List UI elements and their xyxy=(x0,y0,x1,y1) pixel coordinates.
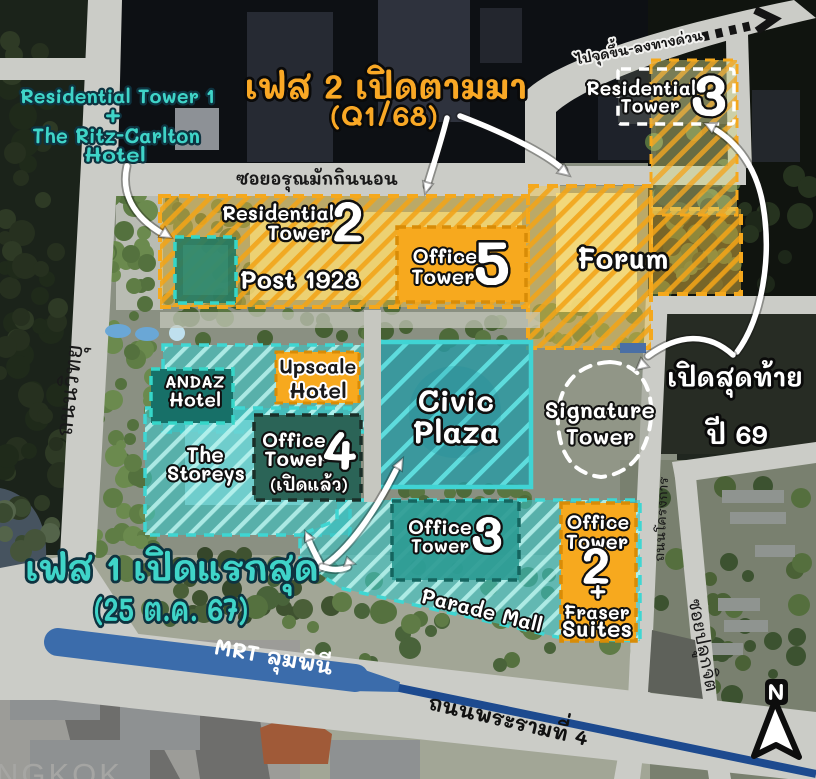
svg-text:NGKOK: NGKOK xyxy=(0,757,123,779)
